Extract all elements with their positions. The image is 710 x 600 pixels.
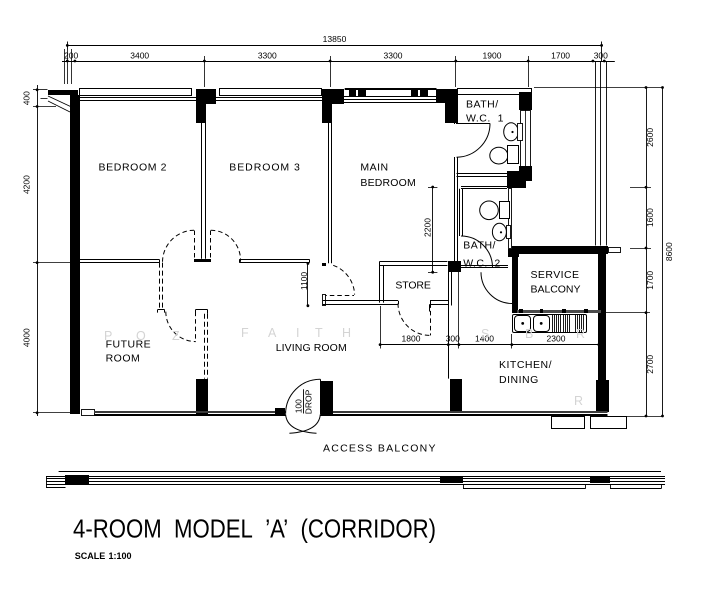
svg-text:BALCONY: BALCONY [531,284,582,296]
svg-text:ROOM: ROOM [106,353,141,365]
svg-text:4200: 4200 [22,175,32,194]
svg-text:400: 400 [22,91,32,105]
svg-text:4000: 4000 [22,328,32,347]
svg-text:R: R [574,394,583,408]
svg-text:B: B [525,327,533,341]
svg-text:1700: 1700 [645,271,655,290]
svg-text:MAIN: MAIN [360,162,388,174]
svg-text:KITCHEN/: KITCHEN/ [499,359,552,371]
svg-text:3400: 3400 [130,50,149,60]
svg-text:SERVICE: SERVICE [531,269,580,281]
svg-text:1:100: 1:100 [109,551,132,561]
svg-text:STORE: STORE [395,280,431,292]
svg-text:2300: 2300 [547,334,566,344]
svg-text:W.C. 1: W.C. 1 [466,113,504,125]
svg-text:100: 100 [293,399,303,413]
svg-text:1800: 1800 [402,334,421,344]
svg-text:2700: 2700 [645,355,655,374]
svg-text:3300: 3300 [258,50,277,60]
svg-text:1100: 1100 [299,272,309,291]
svg-text:BATH/: BATH/ [463,239,496,251]
svg-text:SCALE: SCALE [75,551,106,561]
svg-text:H: H [342,326,351,340]
svg-text:F: F [241,326,249,340]
svg-text:BEDROOM 2: BEDROOM 2 [99,161,168,173]
svg-text:1900: 1900 [483,50,502,60]
svg-text:200: 200 [64,50,78,60]
svg-text:FUTURE: FUTURE [106,338,152,350]
svg-text:W.C. 2: W.C. 2 [463,258,500,270]
svg-text:2200: 2200 [423,218,433,237]
svg-text:3300: 3300 [384,50,403,60]
svg-text:ACCESS BALCONY: ACCESS BALCONY [323,443,436,455]
svg-text:8600: 8600 [664,242,674,261]
svg-text:LIVING ROOM: LIVING ROOM [276,342,348,354]
svg-text:BEDROOM: BEDROOM [360,177,416,189]
svg-text:300: 300 [446,334,460,344]
svg-text:S: S [481,327,489,341]
svg-text:R: R [576,327,585,341]
svg-text:13850: 13850 [323,34,347,44]
svg-text:BATH/: BATH/ [466,99,499,111]
svg-text:4-ROOM MODEL ’A’ (CORRIDOR): 4-ROOM MODEL ’A’ (CORRIDOR) [73,514,436,544]
svg-text:2600: 2600 [645,128,655,147]
svg-text:300: 300 [594,50,608,60]
svg-text:1600: 1600 [645,208,655,227]
svg-text:T: T [315,326,323,340]
svg-text:I: I [296,326,299,340]
svg-text:1700: 1700 [551,50,570,60]
svg-text:A: A [268,326,277,340]
svg-text:Z: Z [172,329,180,343]
svg-text:DINING: DINING [499,374,539,386]
svg-text:BEDROOM 3: BEDROOM 3 [229,161,300,173]
svg-text:DROP: DROP [304,389,314,414]
